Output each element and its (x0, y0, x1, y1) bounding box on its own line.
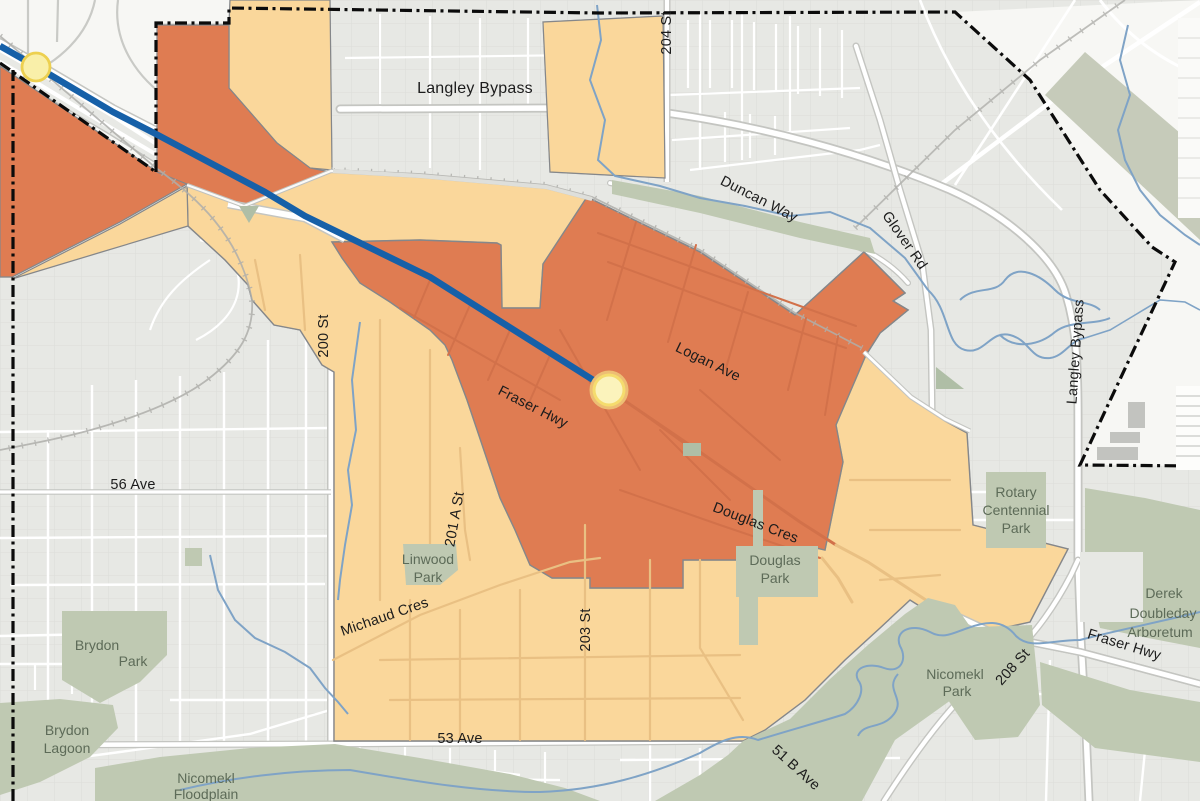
svg-text:204 St: 204 St (659, 11, 675, 54)
svg-text:Linwood: Linwood (402, 551, 454, 567)
svg-text:Brydon: Brydon (75, 637, 119, 653)
svg-text:53 Ave: 53 Ave (437, 731, 482, 747)
svg-text:Langley Bypass: Langley Bypass (417, 80, 533, 97)
svg-text:Park: Park (414, 569, 444, 585)
svg-text:Nicomekl: Nicomekl (177, 770, 235, 786)
svg-text:56 Ave: 56 Ave (110, 477, 155, 493)
svg-text:200 St: 200 St (316, 314, 332, 357)
svg-text:Park: Park (943, 683, 973, 699)
svg-text:Douglas: Douglas (749, 552, 800, 568)
svg-text:Park: Park (1002, 520, 1032, 536)
svg-text:Park: Park (119, 653, 149, 669)
svg-text:Centennial: Centennial (983, 502, 1050, 518)
svg-text:Lagoon: Lagoon (44, 740, 91, 756)
svg-text:Arboretum: Arboretum (1127, 624, 1192, 640)
svg-text:Nicomekl: Nicomekl (926, 666, 984, 682)
svg-text:203 St: 203 St (578, 608, 594, 651)
svg-text:Brydon: Brydon (45, 722, 89, 738)
svg-text:Derek: Derek (1145, 585, 1183, 601)
svg-text:Floodplain: Floodplain (174, 786, 239, 801)
svg-text:Rotary: Rotary (995, 484, 1036, 500)
svg-text:Doubleday: Doubleday (1130, 605, 1197, 621)
svg-text:Park: Park (761, 570, 791, 586)
